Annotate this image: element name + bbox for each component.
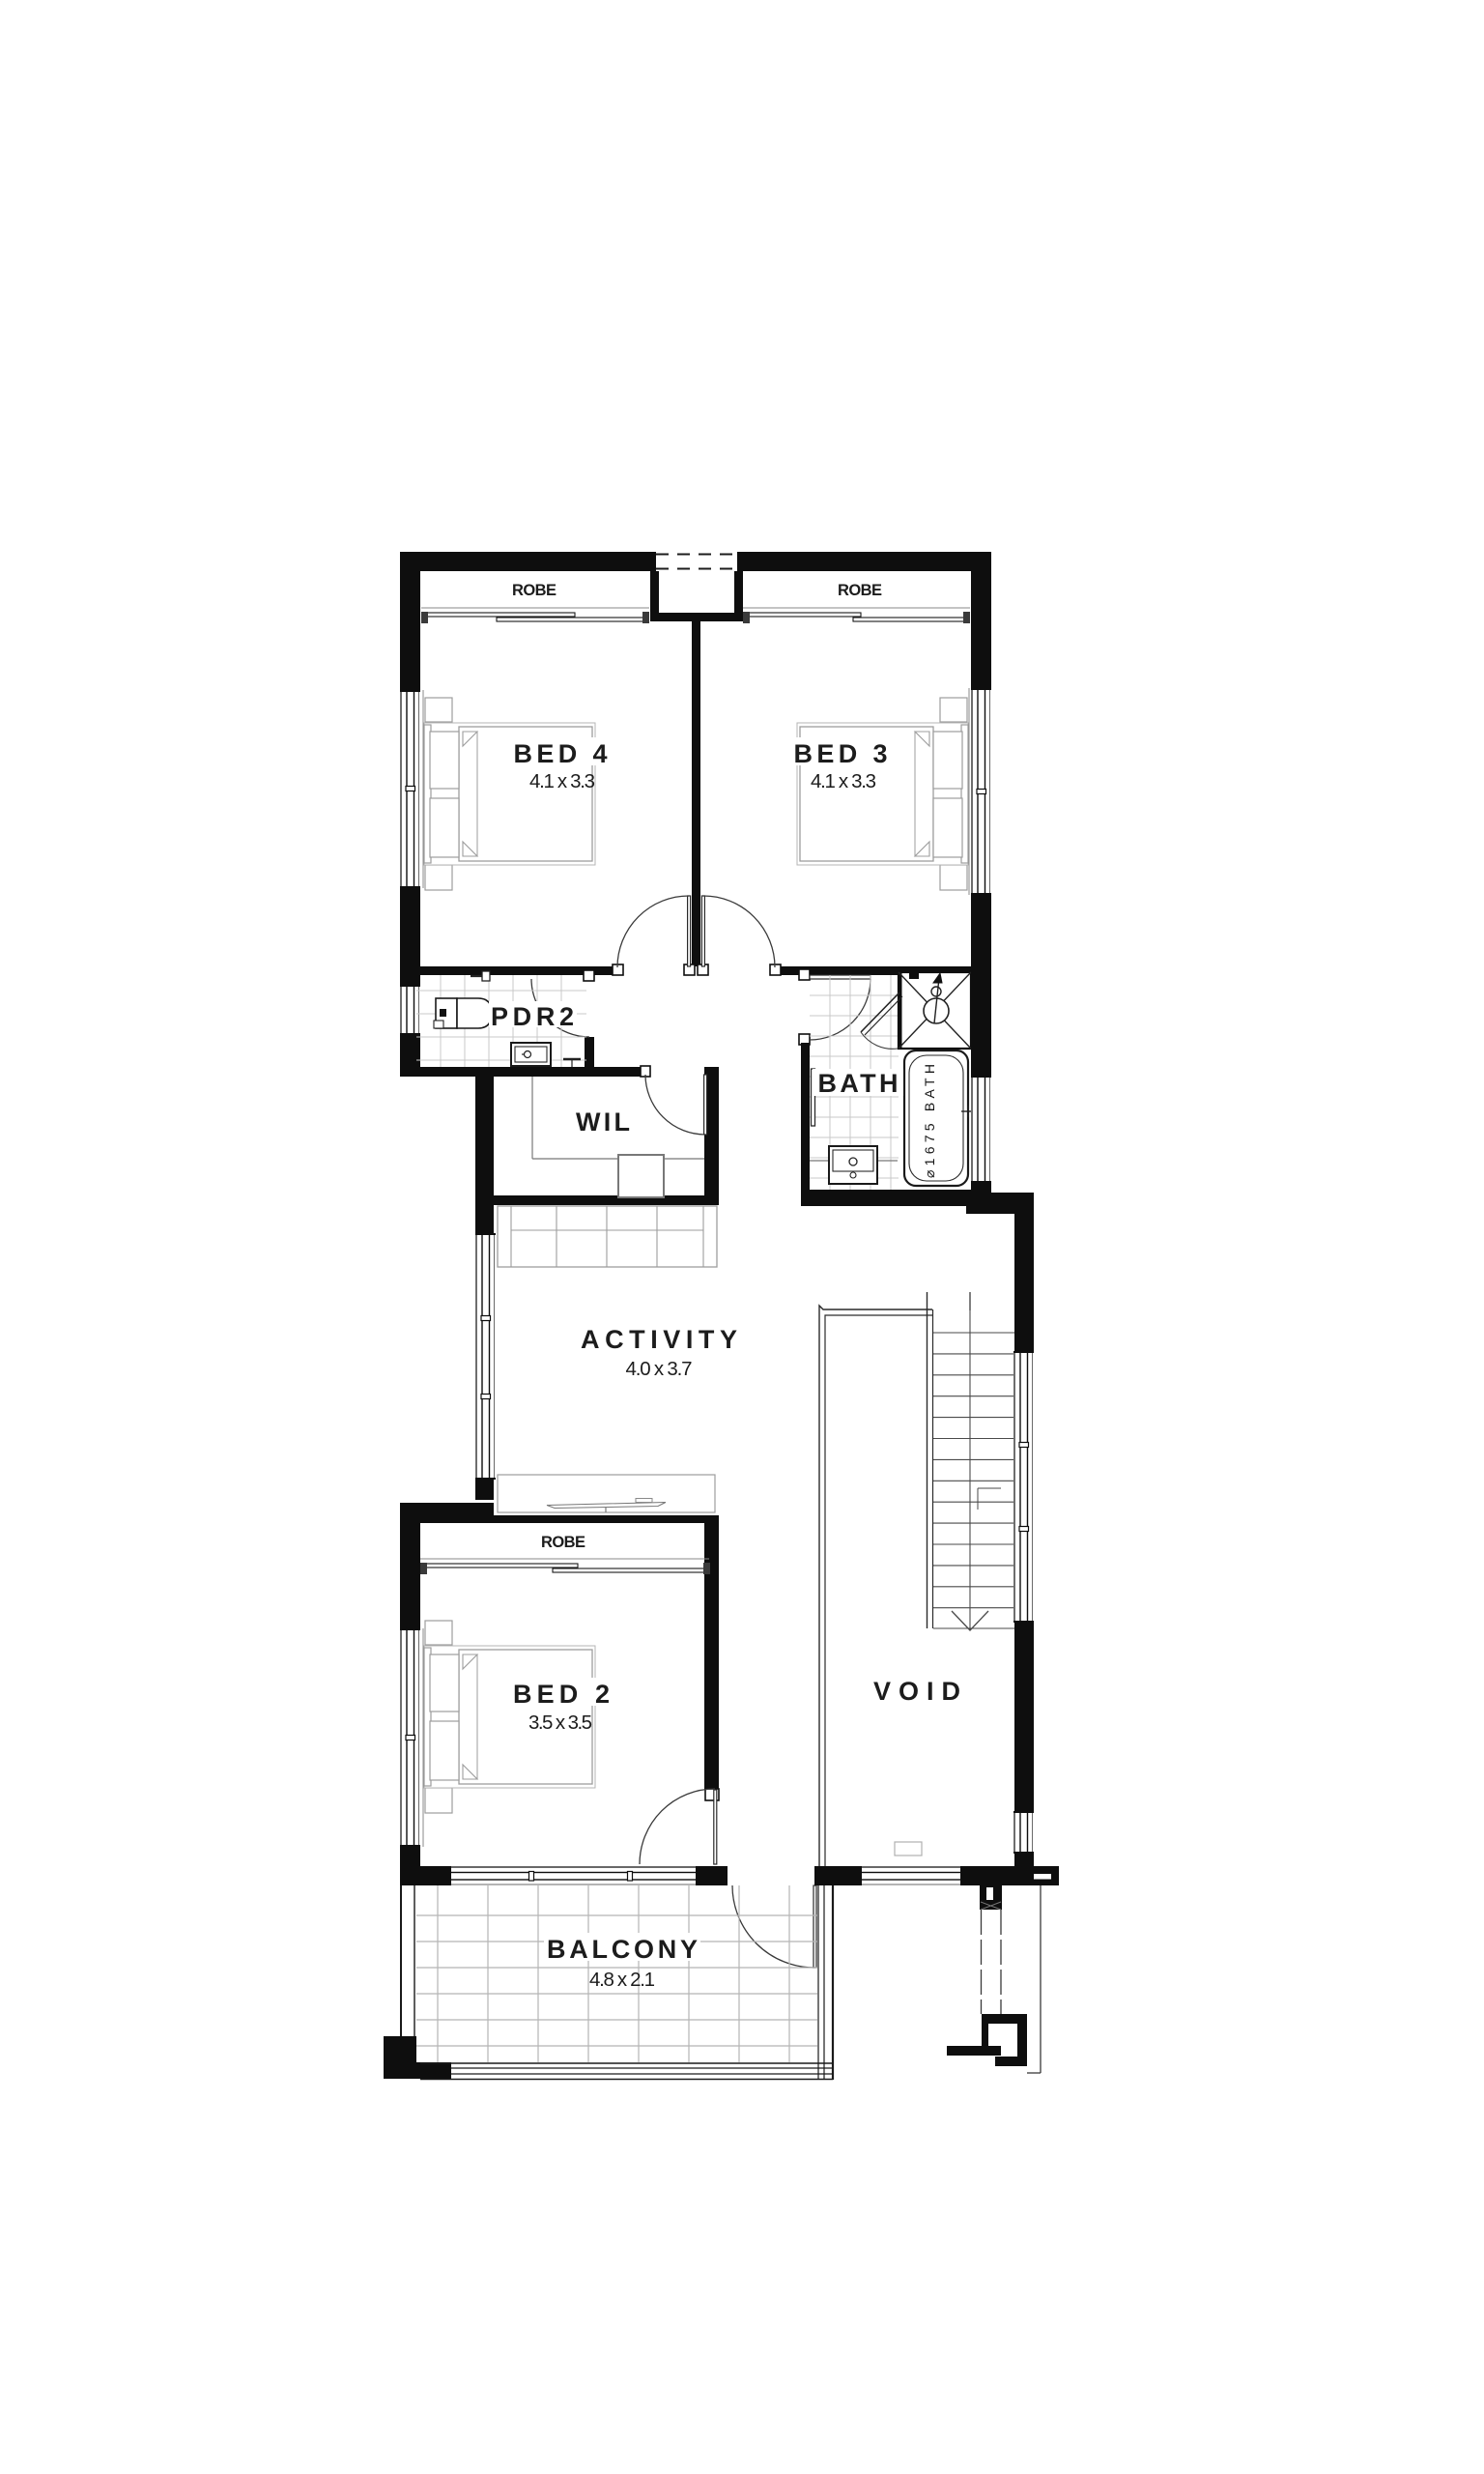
svg-text:4.1 x 3.3: 4.1 x 3.3 xyxy=(529,770,595,792)
svg-text:4.8 x 2.1: 4.8 x 2.1 xyxy=(589,1969,655,1991)
svg-text:ROBE: ROBE xyxy=(838,582,882,599)
svg-text:BALCONY: BALCONY xyxy=(547,1935,698,1964)
svg-text:4.0 x 3.7: 4.0 x 3.7 xyxy=(626,1358,693,1380)
svg-text:VOID: VOID xyxy=(873,1677,960,1706)
svg-text:4.1 x 3.3: 4.1 x 3.3 xyxy=(811,770,876,792)
svg-text:ROBE: ROBE xyxy=(541,1534,585,1551)
svg-text:BED 2: BED 2 xyxy=(513,1680,610,1709)
svg-text:WIL: WIL xyxy=(576,1108,630,1136)
svg-text:3.5 x 3.5: 3.5 x 3.5 xyxy=(528,1712,592,1734)
svg-text:BED 4: BED 4 xyxy=(514,739,608,768)
svg-text:ROBE: ROBE xyxy=(512,582,556,599)
svg-text:BED 3: BED 3 xyxy=(794,739,888,768)
